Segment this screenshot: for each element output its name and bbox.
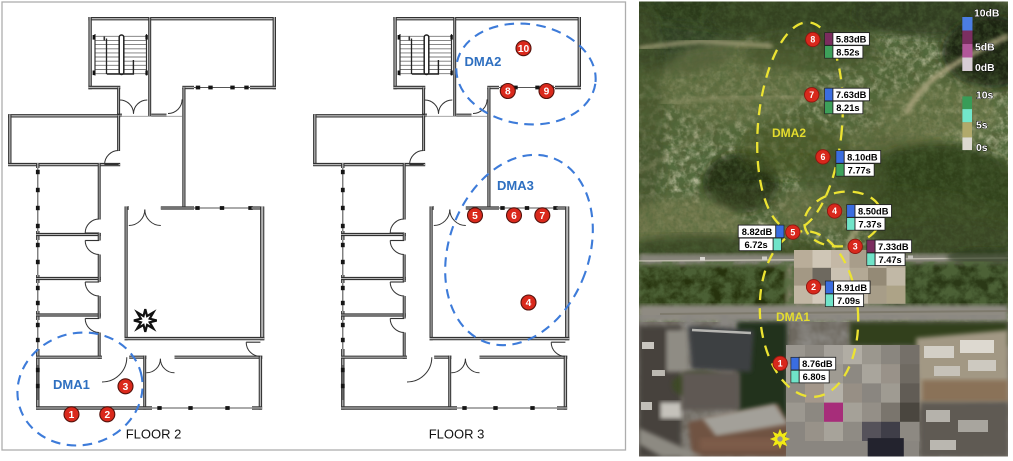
svg-text:3: 3 [123, 382, 129, 393]
svg-text:DMA1: DMA1 [53, 377, 90, 392]
svg-text:5s: 5s [976, 121, 988, 132]
svg-text:5: 5 [472, 211, 478, 222]
svg-text:6: 6 [511, 211, 517, 222]
svg-text:10s: 10s [976, 90, 994, 101]
svg-text:2: 2 [104, 410, 110, 421]
svg-text:5: 5 [790, 227, 795, 237]
svg-text:1: 1 [69, 410, 75, 421]
svg-text:DMA2: DMA2 [772, 126, 806, 140]
svg-text:8.50dB: 8.50dB [858, 206, 889, 216]
svg-text:4: 4 [832, 206, 837, 216]
svg-text:7.09s: 7.09s [837, 296, 860, 306]
svg-text:7.47s: 7.47s [878, 255, 901, 265]
svg-text:6.80s: 6.80s [803, 372, 826, 382]
svg-text:DMA2: DMA2 [465, 54, 502, 69]
svg-text:6.72s: 6.72s [744, 240, 767, 250]
svg-text:DMA3: DMA3 [497, 178, 534, 193]
svg-text:FLOOR 3: FLOOR 3 [429, 426, 485, 441]
svg-text:5dB: 5dB [975, 42, 995, 53]
svg-text:8.76dB: 8.76dB [802, 359, 833, 369]
svg-text:8.82dB: 8.82dB [742, 227, 773, 237]
svg-text:8.91dB: 8.91dB [837, 283, 868, 293]
svg-text:7.77s: 7.77s [848, 165, 871, 175]
svg-text:10dB: 10dB [974, 9, 1000, 20]
svg-text:5.83dB: 5.83dB [836, 34, 867, 44]
svg-text:8: 8 [810, 35, 815, 45]
svg-text:0s: 0s [976, 143, 988, 154]
svg-text:7.33dB: 7.33dB [878, 242, 909, 252]
svg-text:7: 7 [539, 211, 545, 222]
svg-text:7: 7 [809, 90, 814, 100]
svg-text:7.63dB: 7.63dB [836, 90, 867, 100]
svg-text:8.10dB: 8.10dB [847, 152, 878, 162]
svg-text:FLOOR 2: FLOOR 2 [126, 426, 182, 441]
svg-text:8.52s: 8.52s [836, 47, 859, 57]
svg-text:6: 6 [820, 152, 825, 162]
svg-text:8: 8 [505, 87, 511, 98]
svg-text:2: 2 [811, 282, 816, 292]
svg-text:1: 1 [778, 359, 783, 369]
svg-text:10: 10 [518, 44, 530, 55]
svg-text:0dB: 0dB [975, 63, 995, 74]
svg-text:7.37s: 7.37s [858, 219, 881, 229]
svg-text:8.21s: 8.21s [836, 103, 859, 113]
svg-text:3: 3 [853, 242, 858, 252]
svg-text:DMA1: DMA1 [776, 310, 810, 324]
svg-text:4: 4 [526, 298, 532, 309]
svg-text:9: 9 [544, 87, 550, 98]
